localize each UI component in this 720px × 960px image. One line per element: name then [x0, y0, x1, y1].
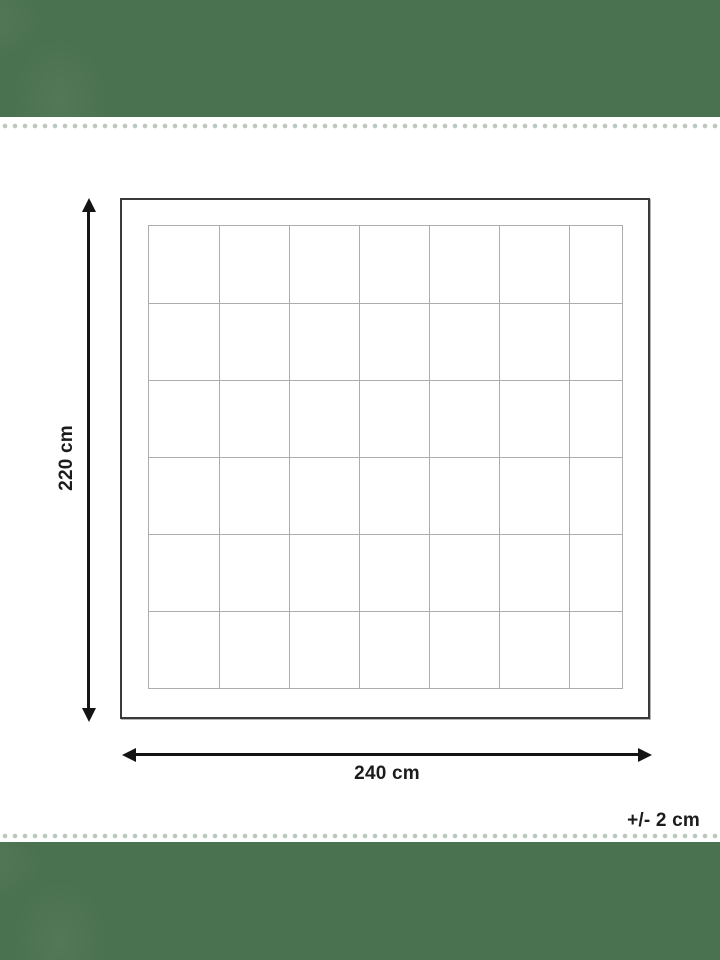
width-dimension-label: 240 cm	[354, 763, 420, 785]
bottom-band-dotted-fringe	[0, 833, 720, 839]
arrow-down-icon	[82, 708, 96, 722]
quilt-grid	[148, 225, 623, 689]
leaf-watermark-pattern	[0, 0, 200, 117]
arrow-right-icon	[638, 748, 652, 762]
arrow-up-icon	[82, 198, 96, 212]
top-band-dotted-fringe	[0, 123, 720, 129]
arrow-left-icon	[122, 748, 136, 762]
grid-line	[149, 534, 622, 535]
width-dimension-arrow	[136, 753, 638, 756]
height-dimension-label: 220 cm	[56, 425, 78, 491]
top-green-band	[0, 0, 720, 117]
bottom-green-band	[0, 842, 720, 960]
grid-line	[149, 380, 622, 381]
leaf-watermark-pattern	[0, 842, 200, 960]
height-dimension-arrow	[87, 212, 90, 708]
grid-line	[149, 611, 622, 612]
grid-line	[149, 457, 622, 458]
grid-line	[149, 303, 622, 304]
tolerance-label: +/- 2 cm	[627, 810, 700, 832]
